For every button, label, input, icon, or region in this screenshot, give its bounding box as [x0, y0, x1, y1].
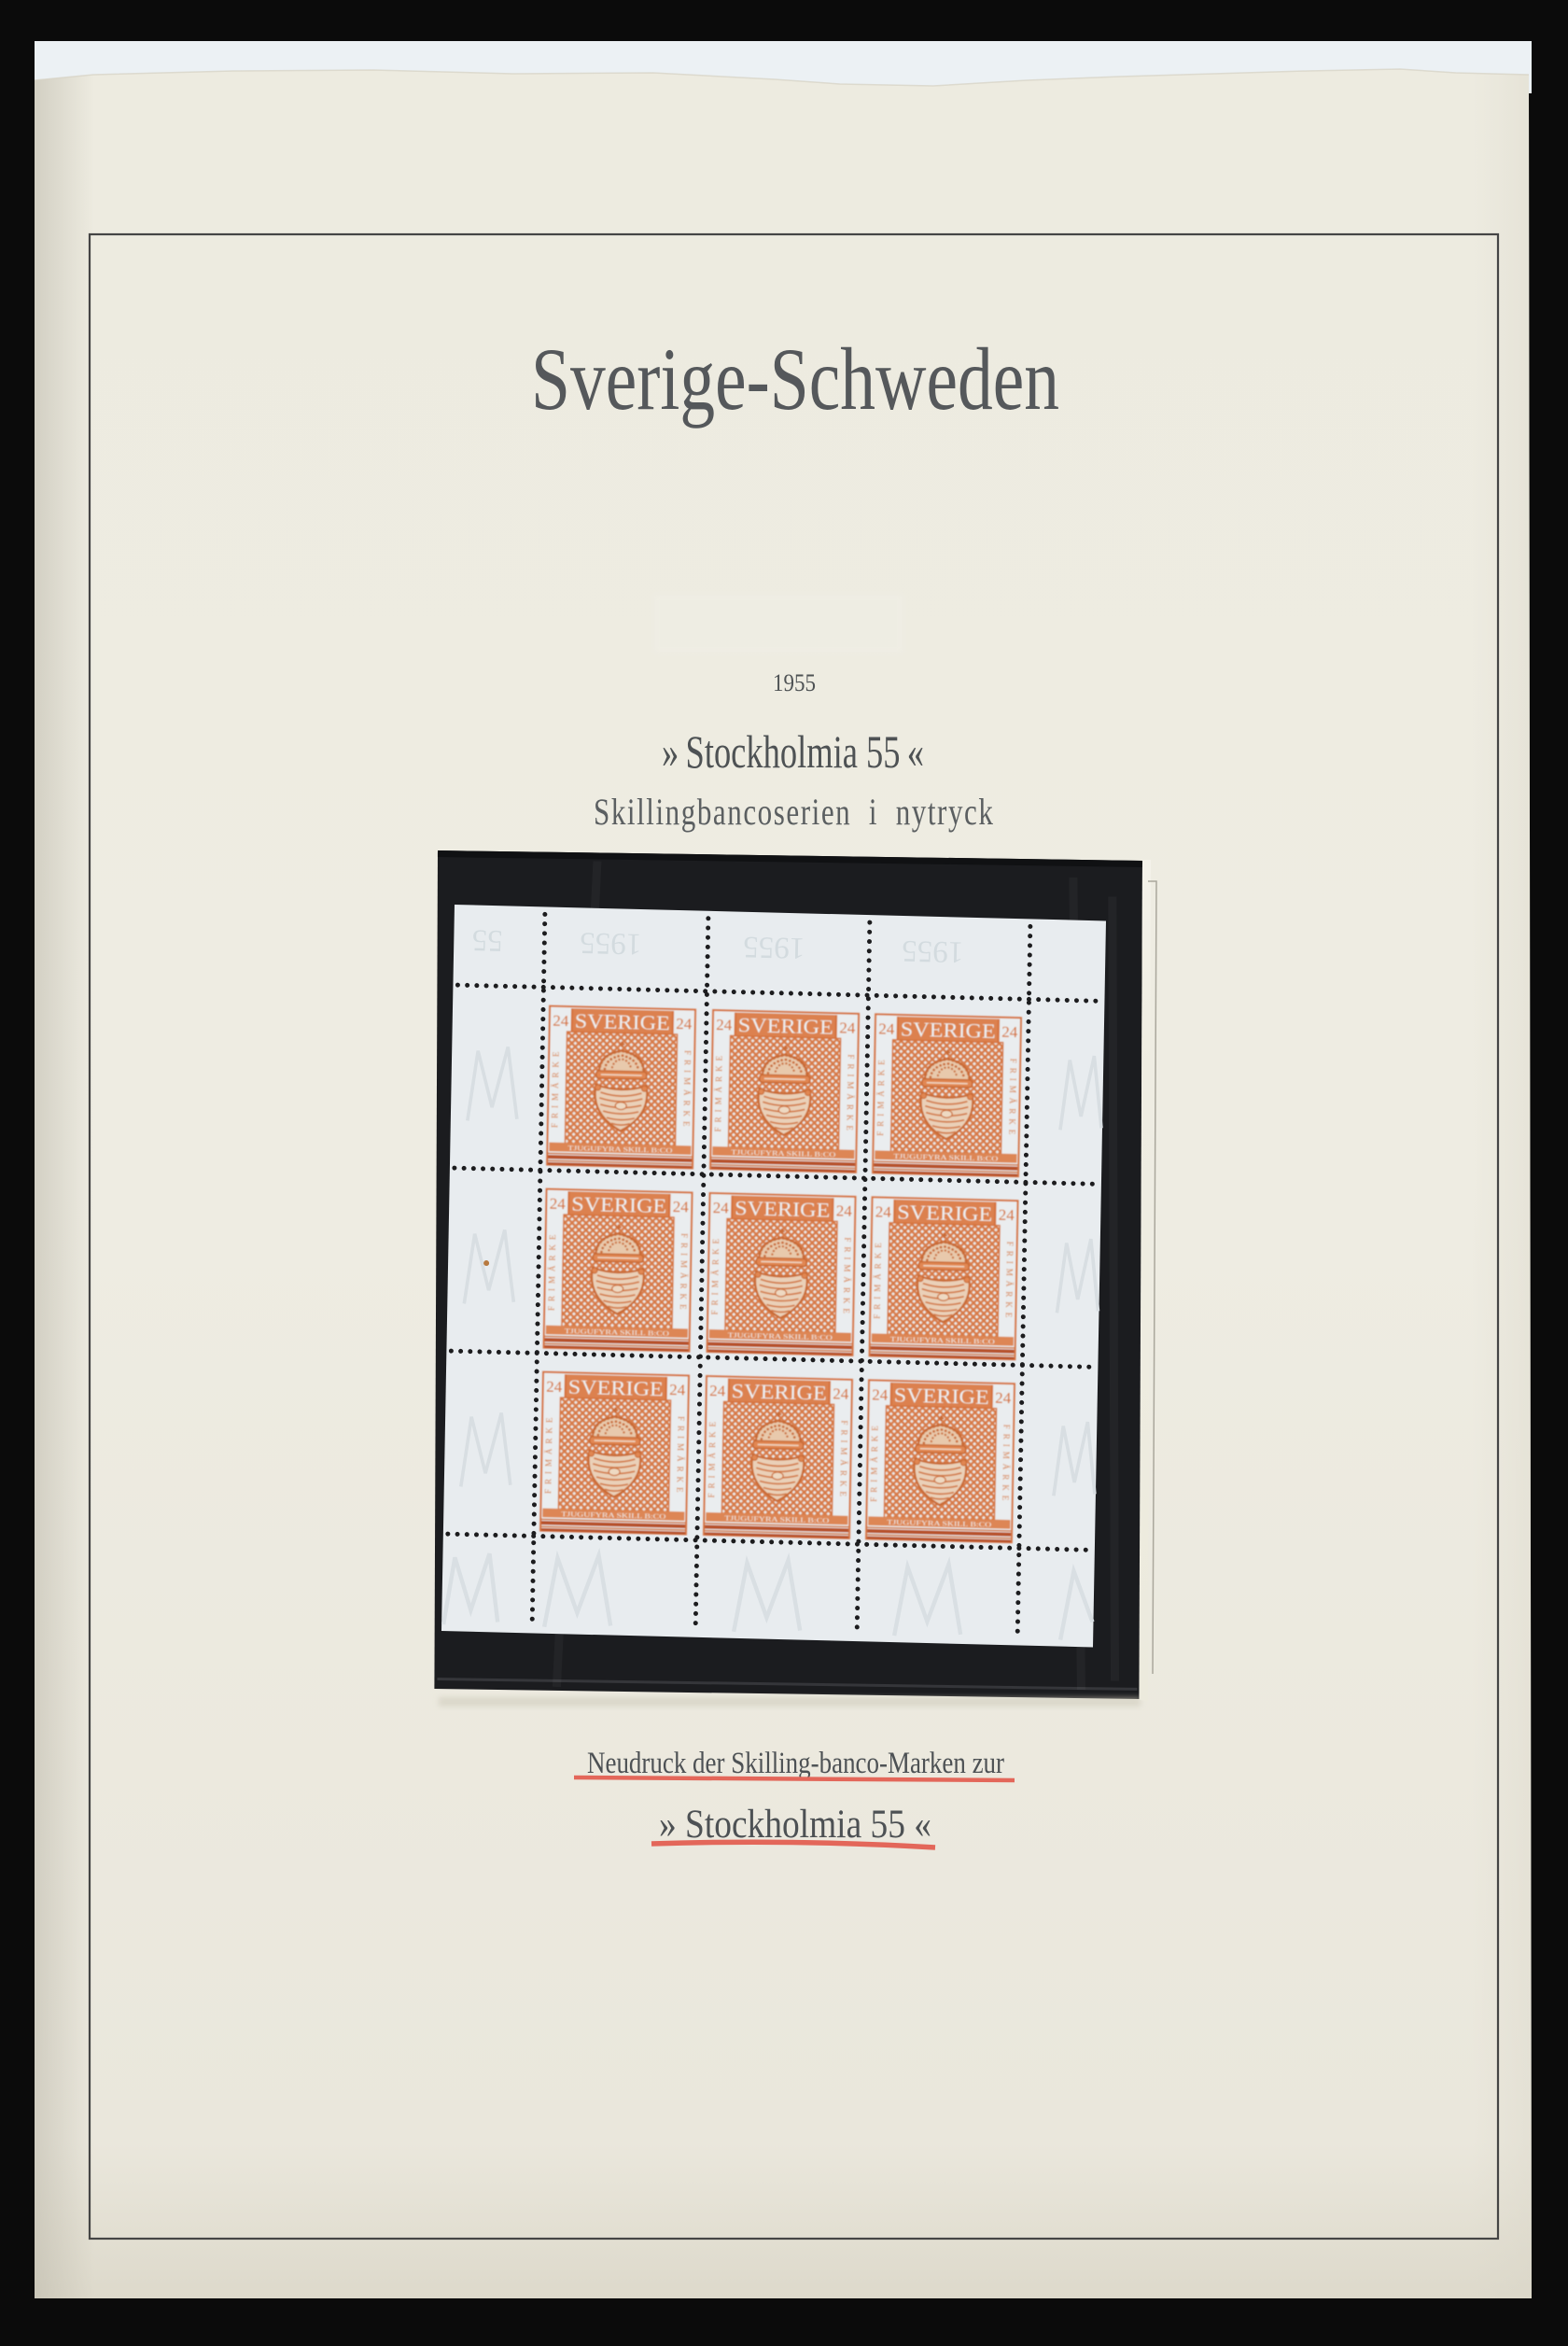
svg-text:Skillingbancoserien i nytryc: Skillingbancoserien i nytryck [594, 791, 994, 833]
svg-text:Sverige-Schweden: Sverige-Schweden [531, 330, 1059, 428]
svg-text:1955: 1955 [773, 669, 816, 696]
svg-text:1955: 1955 [743, 930, 805, 965]
svg-text:Neudruck der Skilling-banco-Ma: Neudruck der Skilling-banco-Marken zur [587, 1747, 1004, 1780]
svg-text:1955: 1955 [580, 925, 642, 961]
svg-text:» Stockholmia 55 «: » Stockholmia 55 « [662, 725, 924, 778]
svg-text:1955: 1955 [902, 934, 964, 969]
svg-text:55: 55 [472, 922, 504, 957]
